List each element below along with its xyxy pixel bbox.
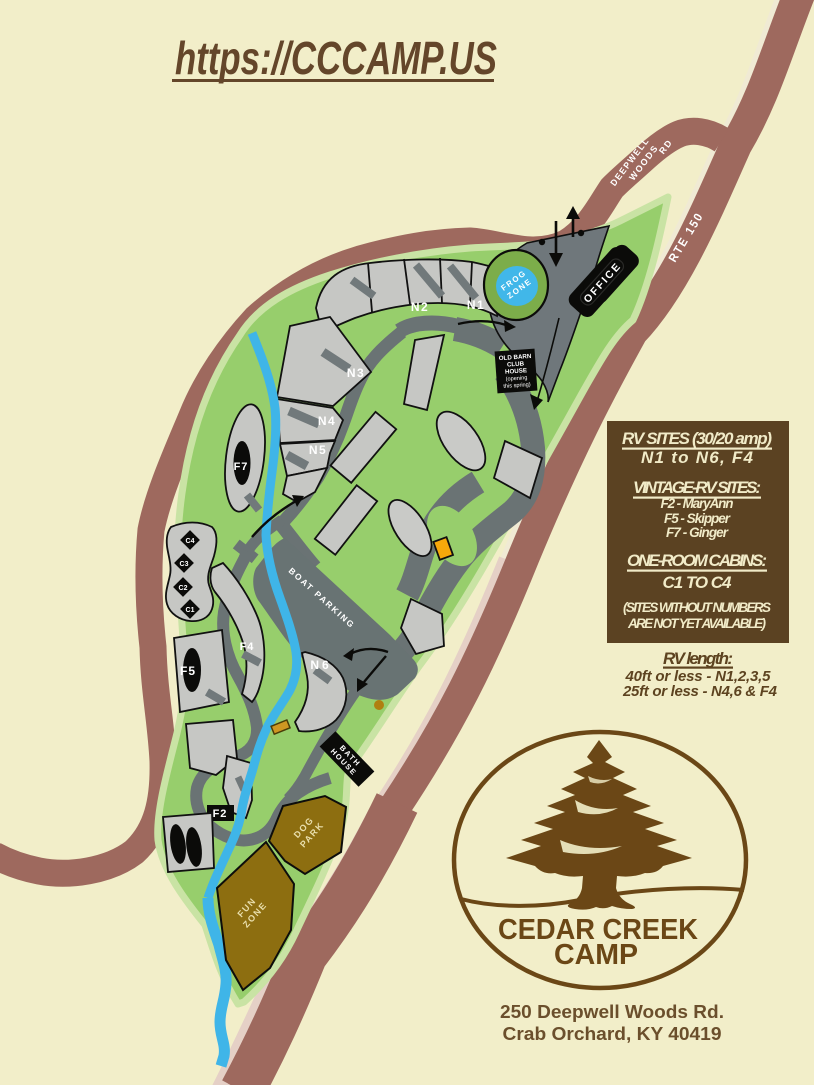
svg-text:F7: F7	[234, 461, 249, 473]
svg-text:250 Deepwell Woods Rd.: 250 Deepwell Woods Rd.	[500, 1002, 724, 1022]
svg-text:https://CCCAMP.US: https://CCCAMP.US	[175, 32, 497, 84]
svg-text:C2: C2	[179, 585, 188, 592]
svg-text:ONE-ROOM CABINS:: ONE-ROOM CABINS:	[627, 551, 767, 570]
svg-text:VINTAGE-RV SITES:: VINTAGE-RV SITES:	[633, 478, 761, 497]
svg-text:N3: N3	[347, 366, 365, 380]
svg-text:C4: C4	[186, 538, 195, 545]
svg-text:C1 TO C4: C1 TO C4	[663, 573, 733, 592]
svg-text:C1: C1	[186, 607, 195, 614]
svg-text:Crab Orchard, KY 40419: Crab Orchard, KY 40419	[503, 1024, 722, 1044]
svg-text:N4: N4	[318, 414, 336, 428]
svg-text:25ft or less - N4,6 & F4: 25ft or less - N4,6 & F4	[622, 683, 778, 700]
svg-text:F7 - Ginger: F7 - Ginger	[666, 525, 729, 540]
svg-text:N5: N5	[309, 443, 327, 457]
svg-text:N6: N6	[310, 658, 331, 672]
svg-text:ARE NOT YET AVAILABLE): ARE NOT YET AVAILABLE)	[627, 616, 767, 631]
svg-text:N1: N1	[467, 298, 485, 312]
svg-text:CAMP: CAMP	[554, 939, 638, 971]
svg-text:N1 to N6, F4: N1 to N6, F4	[641, 448, 754, 467]
svg-text:(SITES WITHOUT NUMBERS: (SITES WITHOUT NUMBERS	[623, 600, 771, 615]
svg-text:RV SITES (30/20 amp): RV SITES (30/20 amp)	[622, 429, 772, 448]
svg-text:F2: F2	[213, 808, 228, 820]
svg-text:RV length:: RV length:	[663, 649, 733, 668]
svg-text:N2: N2	[411, 300, 429, 314]
svg-text:F5: F5	[180, 664, 196, 678]
svg-text:F2 - MaryAnn: F2 - MaryAnn	[661, 496, 734, 511]
svg-text:F5 - Skipper: F5 - Skipper	[664, 511, 731, 526]
svg-text:F4: F4	[240, 641, 255, 653]
svg-text:C3: C3	[180, 561, 189, 568]
